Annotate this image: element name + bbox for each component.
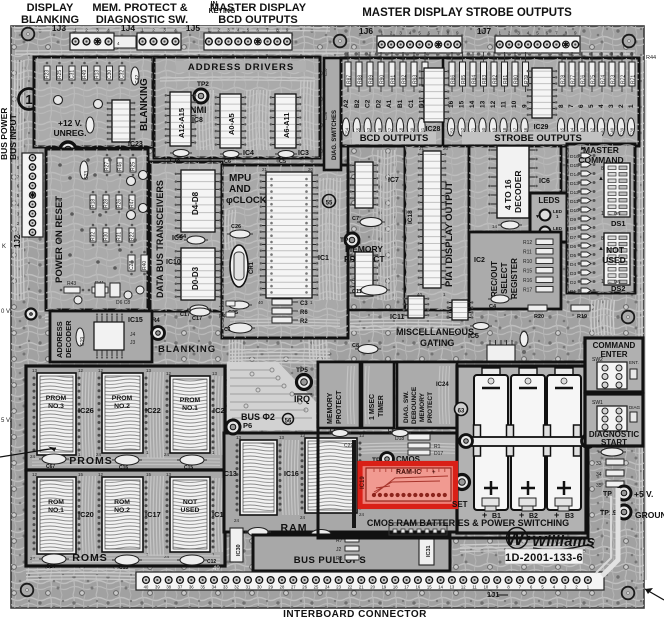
svg-text:SW1: SW1 [592, 400, 603, 406]
svg-text:14: 14 [438, 585, 443, 590]
svg-text:A1: A1 [386, 99, 393, 108]
svg-text:R19: R19 [577, 314, 587, 320]
svg-text:1: 1 [628, 104, 635, 108]
svg-text:C31: C31 [70, 70, 76, 79]
svg-text:D6 C8: D6 C8 [116, 300, 130, 306]
svg-text:R46: R46 [118, 162, 124, 171]
svg-text:R78: R78 [561, 75, 567, 84]
svg-text:TP: TP [340, 237, 349, 244]
svg-text:15: 15 [427, 585, 432, 590]
svg-text:C23: C23 [84, 171, 90, 180]
svg-text:IC2: IC2 [213, 406, 225, 415]
svg-text:D11: D11 [570, 199, 579, 205]
svg-text:ADDRESS: ADDRESS [55, 321, 64, 358]
svg-text:ROM: ROM [114, 499, 130, 506]
svg-text:PROM: PROM [180, 397, 201, 404]
svg-text:IC4: IC4 [243, 150, 254, 157]
svg-text:IC19: IC19 [360, 476, 366, 489]
svg-text:D9: D9 [570, 217, 576, 223]
svg-text:C53: C53 [450, 127, 455, 136]
svg-text:12: 12 [166, 371, 172, 376]
svg-text:R86: R86 [451, 75, 457, 84]
svg-text:17: 17 [404, 585, 409, 590]
svg-text:IC5: IC5 [468, 333, 479, 340]
svg-text:GATING: GATING [420, 338, 454, 348]
svg-text:R12: R12 [523, 240, 532, 246]
svg-text:6: 6 [578, 104, 585, 108]
svg-text:D4: D4 [570, 262, 576, 268]
svg-text:STROBE OUTPUTS: STROBE OUTPUTS [494, 133, 582, 144]
svg-text:INTERBOARD CONNECTOR: INTERBOARD CONNECTOR [283, 609, 427, 620]
svg-text:ROMS: ROMS [72, 552, 108, 564]
svg-text:▲: ▲ [598, 246, 604, 252]
svg-text:R81: R81 [503, 75, 509, 84]
svg-text:24: 24 [359, 512, 365, 517]
svg-text:DEBOUNCE: DEBOUNCE [411, 386, 418, 424]
svg-text:C18: C18 [170, 158, 180, 164]
svg-text:GROUND: GROUND [635, 510, 664, 520]
svg-text:CR1: CR1 [249, 261, 255, 274]
svg-text:21: 21 [419, 146, 425, 151]
svg-text:C32: C32 [120, 70, 126, 79]
svg-text:27: 27 [291, 585, 296, 590]
svg-text:C37: C37 [323, 67, 328, 76]
svg-text:IC26: IC26 [78, 406, 94, 415]
svg-text:15: 15 [78, 472, 84, 477]
svg-text:R90: R90 [380, 75, 386, 84]
svg-text:BCD OUTPUTS: BCD OUTPUTS [218, 14, 297, 26]
svg-text:TIMER: TIMER [378, 395, 385, 417]
svg-text:R25: R25 [57, 70, 63, 79]
svg-text:R2: R2 [300, 319, 308, 325]
svg-text:22: 22 [348, 585, 353, 590]
svg-text:P6: P6 [243, 421, 252, 430]
svg-text:REC/OUT: REC/OUT [490, 261, 499, 297]
svg-text:D5: D5 [570, 253, 576, 259]
svg-text:24: 24 [300, 515, 306, 520]
svg-text:C8: C8 [352, 343, 359, 349]
svg-text:USED: USED [181, 507, 200, 514]
svg-text:55: 55 [326, 201, 333, 207]
svg-text:R84: R84 [472, 75, 478, 84]
svg-text:C7: C7 [352, 216, 359, 222]
svg-text:18: 18 [393, 585, 398, 590]
svg-text:24: 24 [234, 518, 240, 523]
svg-text:R6: R6 [300, 310, 308, 316]
svg-text:13: 13 [480, 100, 487, 108]
svg-text:R10: R10 [523, 259, 532, 265]
svg-text:R85: R85 [461, 75, 467, 84]
svg-text:R44: R44 [646, 55, 656, 61]
svg-text:7: 7 [568, 104, 575, 108]
svg-text:R4: R4 [152, 318, 160, 324]
svg-text:+12 V.: +12 V. [58, 118, 82, 128]
svg-text:START: START [601, 438, 627, 447]
svg-text:13: 13 [300, 433, 306, 438]
svg-text:C38: C38 [630, 127, 635, 136]
svg-text:C26: C26 [231, 224, 241, 230]
svg-text:PROM: PROM [46, 395, 67, 402]
svg-text:40: 40 [258, 300, 264, 305]
svg-text:IC16: IC16 [284, 471, 299, 478]
svg-text:24: 24 [325, 585, 330, 590]
svg-text:DIAG: DIAG [629, 405, 641, 410]
svg-text:37: 37 [178, 585, 183, 590]
svg-text:10: 10 [511, 100, 518, 108]
svg-text:C1: C1 [408, 99, 415, 108]
svg-text:1J5: 1J5 [186, 23, 200, 33]
svg-text:IC6: IC6 [539, 178, 550, 185]
svg-text:✱: ✱ [435, 41, 441, 49]
svg-text:4: 4 [598, 104, 605, 108]
svg-text:R73: R73 [611, 75, 617, 84]
svg-text:29: 29 [268, 585, 273, 590]
svg-text:R93: R93 [413, 75, 419, 84]
svg-text:MASTER DISPLAY STROBE OUTPUTS: MASTER DISPLAY STROBE OUTPUTS [362, 7, 572, 19]
svg-text:R72: R72 [621, 75, 627, 84]
svg-text:C1: C1 [224, 327, 231, 333]
svg-text:A12-A15: A12-A15 [177, 108, 186, 138]
svg-text:COMMAND: COMMAND [593, 341, 636, 350]
svg-text:AND: AND [229, 184, 251, 195]
svg-text:UNREG.: UNREG. [53, 128, 86, 138]
svg-text:B2: B2 [354, 99, 361, 108]
svg-text:R75: R75 [591, 75, 597, 84]
svg-text:1D-2001-133-6: 1D-2001-133-6 [505, 552, 583, 564]
svg-text:MEMORY: MEMORY [327, 392, 334, 424]
svg-text:30: 30 [257, 585, 262, 590]
svg-text:C54: C54 [345, 127, 350, 136]
svg-text:39: 39 [155, 585, 160, 590]
svg-text:C12: C12 [207, 559, 216, 565]
svg-text:TP19: TP19 [600, 510, 617, 517]
svg-text:J4: J4 [130, 332, 136, 338]
svg-text:R11: R11 [523, 250, 532, 256]
svg-text:D17: D17 [434, 451, 443, 457]
svg-text:NO.1: NO.1 [182, 405, 198, 412]
svg-text:12: 12 [32, 472, 38, 477]
svg-text:R79: R79 [524, 75, 530, 84]
svg-text:1: 1 [25, 92, 32, 107]
svg-text:12: 12 [78, 368, 84, 373]
svg-text:C17: C17 [192, 316, 202, 322]
svg-text:C30: C30 [107, 70, 113, 79]
svg-text:R26: R26 [117, 199, 123, 208]
svg-text:IC24: IC24 [436, 382, 449, 388]
svg-text:ADDRESS DRIVERS: ADDRESS DRIVERS [188, 62, 294, 73]
svg-text:14: 14 [469, 100, 476, 108]
svg-text:D18: D18 [395, 436, 404, 442]
svg-text:13: 13 [279, 435, 285, 440]
svg-text:R80: R80 [514, 75, 520, 84]
svg-text:DIAG. SW.: DIAG. SW. [403, 391, 410, 423]
svg-text:12: 12 [490, 100, 497, 108]
svg-text:BLANKING: BLANKING [139, 78, 150, 131]
svg-text:MPU: MPU [229, 173, 251, 184]
svg-text:C11: C11 [352, 289, 362, 295]
svg-text:13: 13 [166, 472, 172, 477]
svg-text:R13: R13 [95, 70, 101, 79]
svg-text:✱: ✱ [255, 38, 261, 46]
svg-text:DATA BUS TRANSCEIVERS: DATA BUS TRANSCEIVERS [155, 180, 165, 298]
svg-text:A6-A11: A6-A11 [282, 113, 291, 138]
svg-text:DECODER: DECODER [64, 320, 73, 358]
svg-text:IC1: IC1 [318, 255, 329, 262]
svg-text:MEMORY: MEMORY [419, 392, 426, 422]
svg-text:35: 35 [596, 483, 602, 489]
svg-text:✱: ✱ [30, 192, 36, 200]
svg-text:TP2: TP2 [197, 81, 209, 88]
svg-text:C13: C13 [119, 565, 128, 571]
svg-text:DIAG. SWITCHES: DIAG. SWITCHES [332, 110, 338, 160]
svg-text:R82: R82 [493, 75, 499, 84]
svg-text:13: 13 [359, 433, 365, 438]
svg-text:MISCELLANEOUS,: MISCELLANEOUS, [396, 327, 477, 337]
svg-text:13: 13 [146, 368, 152, 373]
svg-text:40: 40 [213, 566, 220, 572]
svg-text:NO.3: NO.3 [48, 403, 64, 410]
svg-text:D8: D8 [570, 226, 576, 232]
svg-text:IC30: IC30 [236, 544, 242, 556]
svg-text:DIAGNOSTIC SW.: DIAGNOSTIC SW. [96, 14, 188, 26]
svg-text:IC18: IC18 [407, 210, 414, 224]
svg-text:1J4: 1J4 [121, 23, 135, 33]
svg-text:R71: R71 [631, 75, 637, 84]
svg-text:0 V.: 0 V. [1, 309, 11, 315]
svg-text:R40: R40 [142, 261, 148, 270]
svg-text:2: 2 [618, 104, 625, 108]
svg-text:R88: R88 [358, 75, 364, 84]
svg-text:PROTECT: PROTECT [336, 390, 343, 424]
svg-text:36: 36 [189, 585, 194, 590]
svg-text:24: 24 [30, 454, 36, 459]
svg-text:C39: C39 [620, 127, 625, 136]
svg-text:CMOS RAM BATTERIES & POWER SWI: CMOS RAM BATTERIES & POWER SWITCHING [367, 518, 569, 528]
svg-text:IC17: IC17 [145, 510, 161, 519]
svg-text:DISPLAY: DISPLAY [27, 2, 74, 14]
svg-text:16: 16 [448, 100, 455, 108]
svg-text:24: 24 [164, 452, 170, 457]
svg-text:5 V.: 5 V. [1, 418, 11, 424]
svg-text:20: 20 [443, 146, 449, 151]
svg-text:USED: USED [602, 255, 626, 265]
svg-text:ROM: ROM [48, 499, 64, 506]
svg-text:10: 10 [484, 585, 489, 590]
svg-text:J1: J1 [219, 303, 225, 309]
svg-text:BLANKING: BLANKING [21, 14, 79, 26]
svg-text:RAM-IC: RAM-IC [396, 469, 421, 476]
svg-text:IC3: IC3 [298, 150, 309, 157]
svg-text:IC28: IC28 [426, 126, 441, 133]
svg-text:56: 56 [285, 419, 292, 425]
svg-text:MASTER: MASTER [583, 145, 619, 155]
svg-text:NOT: NOT [183, 499, 198, 506]
svg-text:15: 15 [146, 472, 152, 477]
svg-text:✱: ✱ [563, 41, 569, 49]
svg-text:R49: R49 [82, 70, 88, 79]
svg-text:R43: R43 [67, 281, 76, 287]
svg-text:← ON: ← ON [608, 211, 621, 216]
svg-text:13: 13 [236, 435, 242, 440]
svg-text:J2: J2 [336, 547, 342, 553]
svg-text:R20: R20 [534, 314, 544, 320]
svg-text:20: 20 [308, 167, 314, 172]
svg-text:12: 12 [98, 368, 104, 373]
svg-text:IRQ: IRQ [294, 394, 310, 404]
svg-text:NO.2: NO.2 [114, 403, 130, 410]
svg-text:R4: R4 [219, 314, 226, 320]
svg-text:C14: C14 [46, 564, 55, 570]
svg-text:33: 33 [596, 461, 602, 467]
svg-text:R28: R28 [104, 199, 110, 208]
svg-text:8: 8 [601, 166, 604, 172]
svg-text:REGISTER: REGISTER [510, 258, 519, 299]
svg-text:D1: D1 [570, 289, 576, 295]
svg-text:C2: C2 [365, 99, 372, 108]
svg-text:R17: R17 [523, 288, 532, 294]
svg-text:R77: R77 [571, 75, 577, 84]
svg-text:ENT.: ENT. [629, 360, 639, 365]
svg-text:SW2: SW2 [592, 357, 603, 363]
svg-text:8: 8 [601, 236, 604, 242]
svg-text:PROMS: PROMS [69, 455, 113, 467]
svg-text:1J6: 1J6 [359, 26, 373, 36]
svg-text:11: 11 [472, 585, 477, 590]
svg-text:IC23: IC23 [128, 141, 143, 148]
svg-text:IC29: IC29 [534, 124, 549, 131]
svg-text:IC11: IC11 [390, 314, 405, 321]
svg-text:63: 63 [458, 409, 465, 415]
svg-text:PROTECT: PROTECT [427, 392, 434, 423]
svg-text:13: 13 [32, 368, 38, 373]
svg-text:5: 5 [588, 104, 595, 108]
svg-text:15: 15 [459, 100, 466, 108]
svg-text:R47: R47 [130, 199, 136, 208]
svg-text:R83: R83 [482, 75, 488, 84]
svg-text:4 TO 16: 4 TO 16 [503, 179, 513, 210]
svg-text:+: + [432, 470, 436, 476]
svg-text:RAM: RAM [281, 522, 308, 534]
svg-text:R92: R92 [402, 75, 408, 84]
svg-text:28: 28 [280, 585, 285, 590]
svg-text:8: 8 [558, 104, 565, 108]
svg-text:▲: ▲ [598, 176, 604, 182]
svg-text:IC8: IC8 [192, 117, 203, 124]
svg-text:D3: D3 [570, 271, 576, 277]
svg-text:R1: R1 [434, 444, 441, 450]
svg-text:23: 23 [336, 585, 341, 590]
svg-text:1: 1 [601, 211, 604, 217]
svg-text:BCD OUTPUTS: BCD OUTPUTS [360, 133, 429, 144]
svg-text:IC22: IC22 [145, 406, 161, 415]
svg-text:PROM: PROM [112, 395, 133, 402]
svg-text:21: 21 [359, 585, 364, 590]
svg-text:40: 40 [144, 585, 149, 590]
svg-text:▼: ▼ [535, 214, 540, 220]
svg-text:D7: D7 [570, 235, 576, 241]
svg-text:9: 9 [522, 104, 529, 108]
svg-text:PIA I DISPLAY OUTPUT: PIA I DISPLAY OUTPUT [444, 182, 455, 287]
svg-text:C19: C19 [80, 337, 86, 346]
svg-text:DECODER: DECODER [513, 170, 523, 213]
svg-text:26: 26 [302, 585, 307, 590]
svg-text:✱: ✱ [95, 38, 101, 46]
svg-text:IC20: IC20 [78, 510, 94, 519]
svg-text:R16: R16 [523, 278, 532, 284]
svg-text:C64: C64 [176, 234, 187, 240]
svg-text:C3: C3 [300, 301, 308, 307]
svg-text:BUS INPUT: BUS INPUT [8, 113, 18, 160]
svg-text:C17: C17 [180, 312, 190, 318]
svg-text:D2: D2 [570, 280, 576, 286]
svg-text:IC7: IC7 [388, 177, 399, 184]
svg-text:BLANKING: BLANKING [158, 344, 216, 355]
svg-text:R15: R15 [523, 269, 532, 275]
svg-text:C4: C4 [489, 304, 497, 310]
svg-text:D6: D6 [570, 244, 576, 250]
svg-text:R31: R31 [117, 232, 123, 241]
svg-text:R18: R18 [91, 199, 97, 208]
svg-text:R25: R25 [131, 162, 137, 171]
svg-text:MASTER DISPLAY: MASTER DISPLAY [210, 2, 307, 14]
svg-text:35: 35 [200, 585, 205, 590]
svg-text:31: 31 [246, 585, 251, 590]
svg-text:1 MSEC: 1 MSEC [369, 394, 376, 420]
svg-text:COMMAND: COMMAND [578, 155, 623, 165]
svg-text:12: 12 [98, 472, 104, 477]
svg-text:34: 34 [596, 472, 602, 478]
svg-text:20: 20 [370, 585, 375, 590]
svg-text:NOT: NOT [606, 245, 625, 255]
svg-text:21: 21 [262, 167, 268, 172]
svg-text:NO.2: NO.2 [114, 507, 130, 514]
svg-text:R87: R87 [347, 75, 353, 84]
svg-text:SELECT: SELECT [500, 262, 509, 294]
svg-text:MEM. PROTECT &: MEM. PROTECT & [92, 2, 187, 14]
svg-text:W: W [506, 529, 526, 550]
svg-text:D0-D3: D0-D3 [191, 266, 200, 290]
svg-text:NO.1: NO.1 [48, 507, 64, 514]
svg-text:25: 25 [314, 585, 319, 590]
svg-text:16: 16 [416, 585, 421, 590]
svg-text:DS2: DS2 [611, 284, 626, 293]
svg-text:TP5: TP5 [296, 367, 308, 374]
svg-text:3: 3 [608, 104, 615, 108]
svg-text:24: 24 [30, 556, 36, 561]
svg-text:J3: J3 [130, 340, 136, 346]
svg-text:IC13: IC13 [222, 471, 237, 478]
svg-text:B1: B1 [397, 99, 404, 108]
svg-text:DS1: DS1 [611, 219, 626, 228]
svg-text:ENTER: ENTER [600, 350, 627, 359]
svg-text:1J7: 1J7 [477, 26, 491, 36]
svg-text:13: 13 [212, 371, 218, 376]
svg-text:R76: R76 [581, 75, 587, 84]
svg-text:R89: R89 [369, 75, 375, 84]
svg-text:R32: R32 [91, 232, 97, 241]
svg-text:A0-A5: A0-A5 [227, 113, 236, 135]
svg-text:R8: R8 [336, 556, 343, 562]
svg-text:13: 13 [450, 585, 455, 590]
svg-text:A2: A2 [343, 99, 350, 108]
svg-text:R30: R30 [104, 232, 110, 241]
svg-text:NMI: NMI [190, 105, 207, 115]
svg-text:C22: C22 [344, 443, 353, 449]
svg-text:38: 38 [166, 585, 171, 590]
svg-text:R27: R27 [105, 162, 111, 171]
svg-text:IC31: IC31 [426, 545, 432, 557]
svg-text:+5 V.: +5 V. [634, 489, 653, 499]
